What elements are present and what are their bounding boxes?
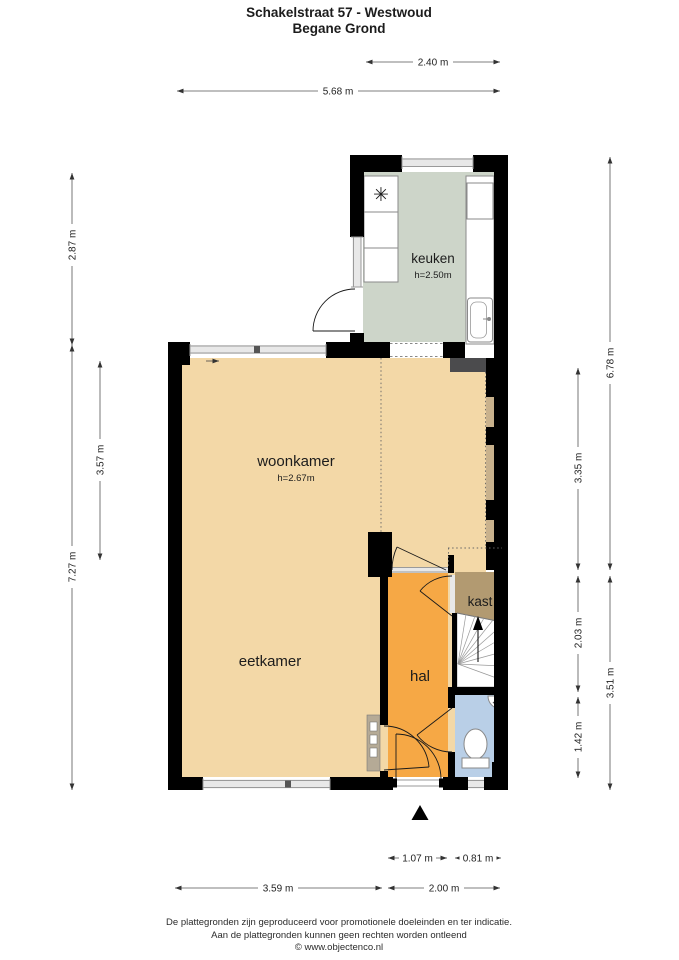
- ceiling-height-keuken: h=2.50m: [414, 270, 451, 281]
- footer-copyright: © www.objectenco.nl: [295, 942, 383, 953]
- wall-segment: [168, 777, 203, 790]
- dimension: 3.35 m: [572, 368, 585, 570]
- dimension-label: 2.40 m: [418, 58, 449, 69]
- wall-segment: [486, 427, 502, 445]
- wall-segment: [380, 577, 388, 725]
- dimension-label: 3.57 m: [96, 445, 107, 476]
- toilet-bowl-icon: [464, 729, 487, 759]
- dimension: 5.68 m: [177, 85, 500, 98]
- ceiling-height-woonkamer: h=2.67m: [277, 473, 314, 484]
- dimension: 3.59 m: [175, 882, 382, 895]
- dimension-label: 2.87 m: [68, 230, 79, 261]
- dimension-label: 3.51 m: [606, 668, 617, 699]
- wall-segment: [443, 342, 465, 358]
- room-label-hal: hal: [410, 668, 430, 685]
- window: [402, 157, 473, 170]
- floorplan-page: ✳: [0, 0, 679, 960]
- dimension-label: 1.07 m: [402, 854, 433, 865]
- kitchen-cabinet: [364, 212, 398, 248]
- wall-segment: [484, 777, 508, 790]
- kitchen-appliance: [467, 183, 493, 219]
- wall-segment: [368, 532, 392, 577]
- open-passage: [390, 344, 443, 357]
- page-subtitle: Begane Grond: [292, 21, 385, 36]
- dimension: 2.40 m: [366, 56, 500, 69]
- dimension: 1.42 m: [572, 697, 585, 778]
- wall-segment: [350, 155, 364, 237]
- dimension-label: 3.59 m: [263, 884, 294, 895]
- dimension: 0.81 m: [455, 852, 501, 865]
- kitchen-cabinet: [364, 248, 398, 282]
- window: [468, 780, 484, 789]
- room-label-keuken: keuken: [411, 251, 455, 266]
- dimension-label: 1.42 m: [574, 722, 585, 753]
- footer-disclaimer-2: Aan de plattegronden kunnen geen rechten…: [211, 930, 467, 941]
- dimension-label: 7.27 m: [68, 552, 79, 583]
- dimension-label: 5.68 m: [323, 87, 354, 98]
- dimension-label: 2.00 m: [429, 884, 460, 895]
- dimension: 7.27 m: [66, 345, 79, 790]
- dimension: 2.03 m: [572, 576, 585, 692]
- dimension-label: 0.81 m: [463, 854, 494, 865]
- dimension: 3.51 m: [604, 576, 617, 790]
- dimension: 6.78 m: [604, 157, 617, 570]
- kitchen-sink-icon: [468, 298, 493, 342]
- dimension-label: 6.78 m: [606, 348, 617, 379]
- wall-segment: [486, 358, 502, 397]
- dimension: 2.87 m: [66, 173, 79, 345]
- wall-segment: [380, 771, 388, 790]
- window: [351, 237, 363, 287]
- dimension: 2.00 m: [388, 882, 500, 895]
- wall-segment: [326, 342, 390, 358]
- dimension: 3.57 m: [94, 361, 107, 560]
- meter-cabinet: [367, 715, 380, 771]
- dimension: 1.07 m: [388, 852, 447, 865]
- wall-segment: [486, 500, 502, 520]
- wall-segment: [448, 687, 502, 695]
- wall-segment: [452, 613, 457, 687]
- floorplan-canvas: ✳: [0, 0, 679, 960]
- room-label-eetkamer: eetkamer: [239, 653, 302, 670]
- dimension-label: 2.03 m: [574, 618, 585, 649]
- footer-disclaimer-1: De plattegronden zijn geproduceerd voor …: [166, 917, 512, 928]
- wall-segment: [168, 342, 182, 790]
- page-title: Schakelstraat 57 - Westwoud: [246, 5, 432, 20]
- wall-segment: [448, 695, 455, 708]
- room-label-kast: kast: [468, 594, 493, 609]
- toilet-tank-icon: [462, 758, 489, 768]
- window: [203, 779, 330, 791]
- wall-segment: [486, 542, 502, 570]
- dimension-label: 3.35 m: [574, 453, 585, 484]
- room-label-woonkamer: woonkamer: [256, 453, 335, 470]
- wall-segment: [443, 777, 468, 790]
- stove-burner-icon: ✳: [373, 185, 389, 206]
- wall-segment: [492, 762, 502, 777]
- north-arrow-icon: [412, 805, 429, 820]
- wall-segment: [448, 752, 455, 777]
- kitchen-back-door: [313, 289, 355, 331]
